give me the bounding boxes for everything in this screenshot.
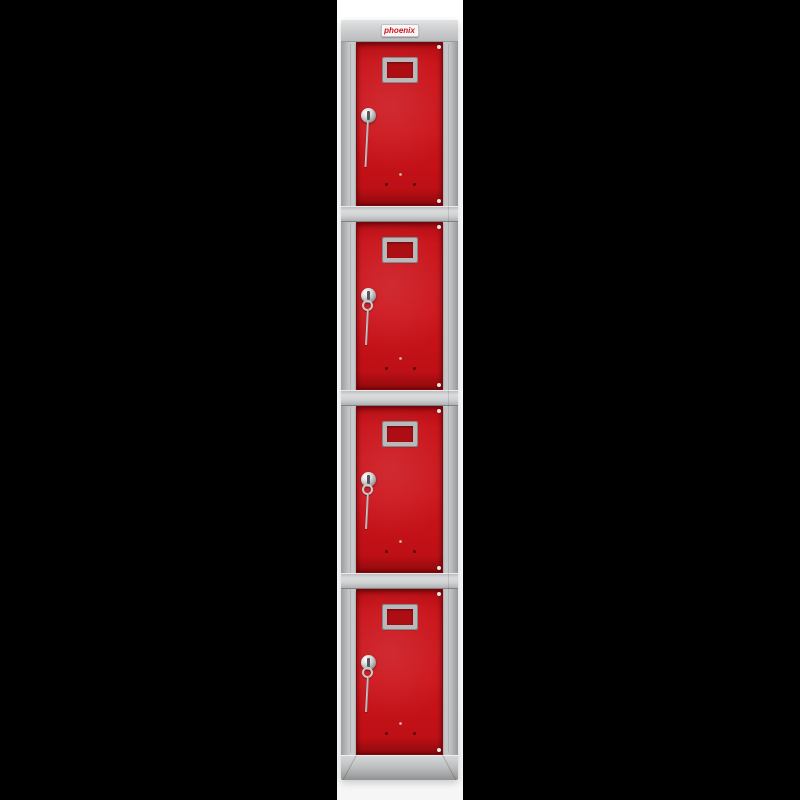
- vent-hole: [399, 540, 402, 543]
- locker-door-1: [356, 42, 443, 206]
- label-holder: [383, 422, 417, 446]
- hanging-key-icon: [365, 676, 369, 712]
- locker-door-3: [356, 406, 443, 573]
- base-plinth: [341, 755, 458, 780]
- vent-hole: [399, 357, 402, 360]
- vent-hole: [413, 183, 416, 186]
- hinge-pin-icon: [437, 225, 441, 229]
- locker-cabinet: phoenix: [341, 20, 458, 780]
- label-holder: [383, 58, 417, 82]
- label-holder: [383, 605, 417, 629]
- hinge-pin-icon: [437, 748, 441, 752]
- locker-top-rail: phoenix: [341, 20, 458, 42]
- hanging-key-icon: [365, 121, 369, 167]
- vent-hole: [385, 550, 388, 553]
- hinge-pin-icon: [437, 592, 441, 596]
- shelf-divider: [341, 206, 458, 222]
- hinge-pin-icon: [437, 45, 441, 49]
- brand-logo-text: phoenix: [382, 25, 418, 36]
- hinge-pin-icon: [437, 199, 441, 203]
- vent-hole: [413, 550, 416, 553]
- locker-door-2: [356, 222, 443, 390]
- vent-hole: [413, 732, 416, 735]
- hinge-pin-icon: [437, 566, 441, 570]
- locker-door-4: [356, 589, 443, 755]
- photo-background: phoenix: [0, 0, 800, 800]
- vent-hole: [399, 722, 402, 725]
- vent-hole: [385, 732, 388, 735]
- hinge-pin-icon: [437, 409, 441, 413]
- vent-hole: [385, 367, 388, 370]
- hanging-key-icon: [365, 493, 369, 529]
- vent-hole: [413, 367, 416, 370]
- label-holder: [383, 238, 417, 262]
- hinge-pin-icon: [437, 383, 441, 387]
- shelf-divider: [341, 573, 458, 589]
- shelf-divider: [341, 390, 458, 406]
- brand-badge: phoenix: [381, 24, 419, 37]
- hanging-key-icon: [365, 309, 369, 345]
- vent-hole: [385, 183, 388, 186]
- vent-hole: [399, 173, 402, 176]
